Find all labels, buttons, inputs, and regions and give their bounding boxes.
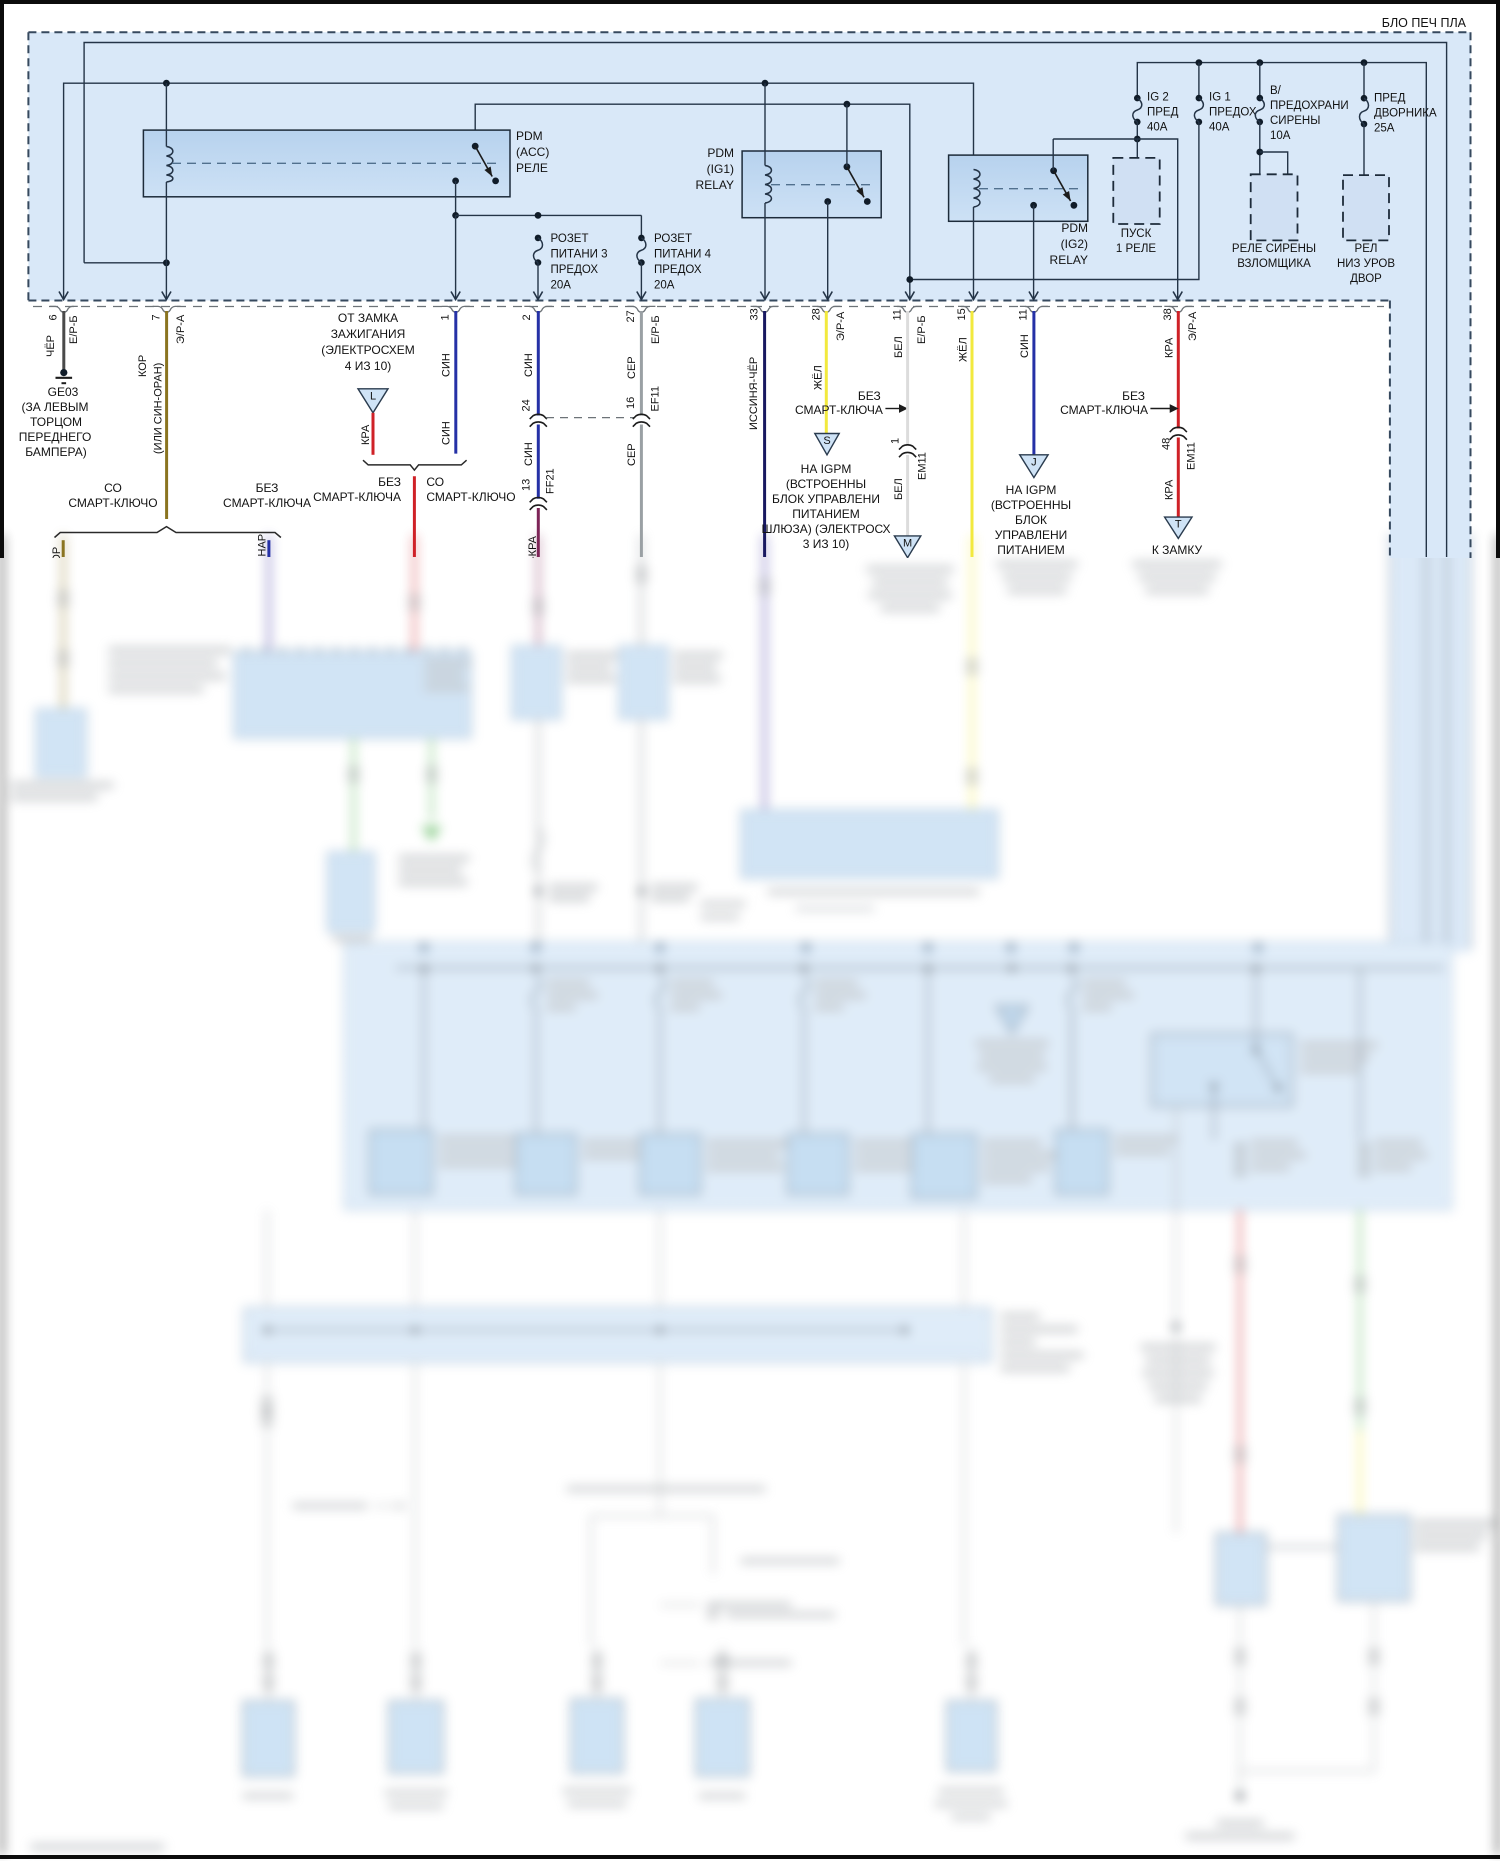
svg-text:БЕЗ: БЕЗ: [1122, 389, 1145, 403]
svg-text:СИН: СИН: [1019, 334, 1031, 358]
svg-text:J: J: [1031, 456, 1037, 468]
svg-text:PDM: PDM: [707, 146, 734, 160]
svg-text:7: 7: [151, 314, 163, 320]
svg-text:БЕЗ: БЕЗ: [378, 475, 401, 489]
svg-text:IG 2: IG 2: [1147, 92, 1169, 104]
svg-text:СО: СО: [426, 475, 444, 489]
svg-text:ЧЁР-КРА: ЧЁР-КРА: [527, 535, 539, 582]
svg-text:Е/Р-Б: Е/Р-Б: [916, 315, 928, 344]
svg-text:15: 15: [956, 308, 968, 320]
svg-text:20А: 20А: [551, 280, 572, 292]
svg-text:PDM: PDM: [516, 129, 543, 143]
svg-text:КРА: КРА: [1164, 337, 1176, 358]
svg-text:ВЗЛОМЩИКА: ВЗЛОМЩИКА: [1237, 258, 1311, 270]
svg-text:28: 28: [811, 308, 823, 320]
svg-text:ИССИНЯ-ЧЁР: ИССИНЯ-ЧЁР: [748, 357, 760, 430]
svg-text:ПУСК: ПУСК: [1121, 228, 1152, 240]
svg-text:RELAY: RELAY: [696, 178, 734, 192]
svg-text:БЕЛ: БЕЛ: [893, 478, 905, 500]
svg-text:(ЗА ЛЕВЫМ: (ЗА ЛЕВЫМ: [21, 400, 88, 414]
svg-text:НАР: НАР: [257, 534, 269, 557]
svg-text:СМАРТ-КЛЮЧО: СМАРТ-КЛЮЧО: [68, 496, 157, 510]
svg-text:Э/Р-А: Э/Р-А: [175, 314, 187, 344]
svg-text:СИН: СИН: [441, 353, 453, 377]
svg-text:38: 38: [1162, 308, 1174, 320]
svg-text:СЕР: СЕР: [626, 443, 638, 466]
svg-text:К ЗАМКУ: К ЗАМКУ: [1152, 543, 1203, 557]
svg-text:РЕЛЕ СИРЕНЫ: РЕЛЕ СИРЕНЫ: [1232, 243, 1316, 255]
svg-text:РЕЛЕ: РЕЛЕ: [516, 161, 548, 175]
svg-text:FF21: FF21: [545, 468, 557, 494]
svg-text:2: 2: [521, 314, 533, 320]
svg-text:БЕЗ: БЕЗ: [858, 389, 881, 403]
svg-text:ДВОР: ДВОР: [1350, 273, 1382, 285]
svg-text:4 ИЗ 10): 4 ИЗ 10): [345, 359, 392, 373]
svg-text:(ВСТРОЕННЫ: (ВСТРОЕННЫ: [786, 477, 866, 491]
svg-text:ПИТАНИ 4: ПИТАНИ 4: [654, 249, 712, 261]
svg-text:СМАРТ-КЛЮЧО: СМАРТ-КЛЮЧО: [426, 490, 515, 504]
svg-text:БЕЛ: БЕЛ: [893, 336, 905, 358]
svg-text:СО: СО: [104, 481, 122, 495]
svg-text:T: T: [1175, 519, 1182, 531]
svg-text:НИЗ УРОВ: НИЗ УРОВ: [1337, 258, 1395, 270]
svg-text:СЕР: СЕР: [626, 356, 638, 379]
svg-text:ПРЕДОХ: ПРЕДОХ: [654, 264, 702, 276]
svg-text:ПИТАНИЕМ: ПИТАНИЕМ: [997, 543, 1064, 557]
svg-text:ЕМ11: ЕМ11: [1186, 442, 1198, 470]
svg-text:ПИТАНИ 3: ПИТАНИ 3: [551, 249, 608, 261]
svg-text:СИН: СИН: [523, 442, 535, 466]
svg-text:РОЗЕТ: РОЗЕТ: [551, 233, 589, 245]
svg-text:НА IGPM: НА IGPM: [801, 462, 852, 476]
svg-text:(IG2): (IG2): [1061, 237, 1088, 251]
svg-text:КРА: КРА: [360, 424, 372, 445]
svg-text:ПЕРЕДНЕГО: ПЕРЕДНЕГО: [19, 430, 92, 444]
svg-text:В/: В/: [1270, 85, 1282, 97]
svg-text:13: 13: [521, 479, 533, 491]
svg-text:Е/Р-Б: Е/Р-Б: [650, 315, 662, 344]
svg-text:EF11: EF11: [650, 386, 662, 411]
svg-text:M: M: [903, 537, 912, 549]
svg-text:24: 24: [521, 399, 533, 411]
svg-text:СИРЕНЫ: СИРЕНЫ: [1270, 115, 1320, 127]
svg-text:PDM: PDM: [1061, 221, 1088, 235]
svg-text:КОР: КОР: [137, 355, 149, 377]
svg-text:ПРЕДОХ: ПРЕДОХ: [1209, 107, 1257, 119]
svg-text:RELAY: RELAY: [1050, 253, 1088, 267]
svg-text:ЖЁЛ: ЖЁЛ: [813, 365, 825, 390]
svg-text:СИН: СИН: [523, 353, 535, 377]
svg-text:УПРАВЛЕНИ: УПРАВЛЕНИ: [995, 528, 1068, 542]
svg-text:S: S: [823, 435, 830, 447]
svg-text:L: L: [370, 390, 376, 402]
svg-text:НА IGPM: НА IGPM: [1006, 483, 1057, 497]
svg-text:11: 11: [892, 309, 904, 320]
svg-text:КОР: КОР: [51, 547, 63, 569]
svg-text:IG 1: IG 1: [1209, 92, 1231, 104]
svg-text:20А: 20А: [654, 280, 675, 292]
svg-text:ОТ ЗАМКА: ОТ ЗАМКА: [338, 311, 398, 325]
svg-text:33: 33: [749, 308, 761, 320]
svg-text:БЛОК: БЛОК: [1015, 513, 1047, 527]
svg-text:27: 27: [625, 310, 637, 322]
svg-text:СМАРТ-КЛЮЧА: СМАРТ-КЛЮЧА: [1060, 403, 1148, 417]
svg-text:ШЛЮЗА) (ЭЛЕКТРОСХ: ШЛЮЗА) (ЭЛЕКТРОСХ: [761, 522, 890, 536]
svg-text:16: 16: [625, 397, 637, 409]
svg-text:ПРЕД: ПРЕД: [1374, 93, 1406, 105]
svg-text:1 РЕЛЕ: 1 РЕЛЕ: [1116, 243, 1156, 255]
svg-text:СМАРТ-КЛЮЧА: СМАРТ-КЛЮЧА: [795, 403, 883, 417]
svg-text:10А: 10А: [1270, 130, 1291, 142]
svg-text:БЛОК УПРАВЛЕНИ: БЛОК УПРАВЛЕНИ: [772, 492, 880, 506]
svg-text:(ИЛИ СИН-ОРАН): (ИЛИ СИН-ОРАН): [153, 363, 165, 454]
svg-text:Э/Р-А: Э/Р-А: [1187, 311, 1199, 341]
svg-text:6: 6: [48, 314, 60, 320]
svg-text:ПИТАНИЕМ: ПИТАНИЕМ: [792, 507, 859, 521]
svg-text:ПРЕДОХРАНИ: ПРЕДОХРАНИ: [1270, 100, 1349, 112]
svg-text:Э/Р-А: Э/Р-А: [835, 311, 847, 341]
svg-text:1: 1: [440, 314, 452, 320]
svg-text:ЕМ11: ЕМ11: [917, 452, 929, 480]
svg-text:(ВСТРОЕННЫ: (ВСТРОЕННЫ: [991, 498, 1071, 512]
svg-text:БАМПЕРА): БАМПЕРА): [25, 445, 86, 459]
svg-text:СМАРТ-КЛЮЧА: СМАРТ-КЛЮЧА: [223, 496, 311, 510]
svg-text:ЗАЖИГАНИЯ: ЗАЖИГАНИЯ: [331, 327, 406, 341]
svg-text:(IG1): (IG1): [707, 162, 734, 176]
svg-text:ДВОРНИКА: ДВОРНИКА: [1374, 108, 1437, 120]
svg-text:БЕЗ: БЕЗ: [256, 481, 279, 495]
svg-text:БЛО ПЕЧ ПЛА: БЛО ПЕЧ ПЛА: [1382, 16, 1467, 30]
svg-text:(ЭЛЕКТРОСХЕМ: (ЭЛЕКТРОСХЕМ: [321, 343, 415, 357]
svg-text:Е/Р-Б: Е/Р-Б: [68, 315, 80, 344]
svg-text:СМАРТ-КЛЮЧА: СМАРТ-КЛЮЧА: [313, 490, 401, 504]
svg-text:(ACC): (ACC): [516, 145, 549, 159]
svg-text:48: 48: [1161, 438, 1173, 450]
svg-text:СИН: СИН: [441, 421, 453, 445]
svg-text:РЕЛ: РЕЛ: [1355, 243, 1378, 255]
svg-text:40А: 40А: [1209, 122, 1230, 134]
svg-text:ТОРЦОМ: ТОРЦОМ: [30, 415, 82, 429]
svg-text:РОЗЕТ: РОЗЕТ: [654, 233, 692, 245]
svg-text:3 ИЗ 10): 3 ИЗ 10): [803, 537, 850, 551]
svg-text:ЧЁР: ЧЁР: [45, 335, 57, 357]
svg-text:GE03: GE03: [48, 385, 79, 399]
svg-text:ЖЁЛ: ЖЁЛ: [958, 337, 970, 362]
svg-text:40А: 40А: [1147, 122, 1168, 134]
svg-text:25А: 25А: [1374, 123, 1395, 135]
svg-text:1: 1: [890, 438, 902, 444]
svg-text:КРА: КРА: [1164, 479, 1176, 500]
svg-text:ПРЕДОХ: ПРЕДОХ: [551, 264, 599, 276]
svg-text:11: 11: [1018, 309, 1030, 320]
svg-text:ПРЕД: ПРЕД: [1147, 107, 1179, 119]
